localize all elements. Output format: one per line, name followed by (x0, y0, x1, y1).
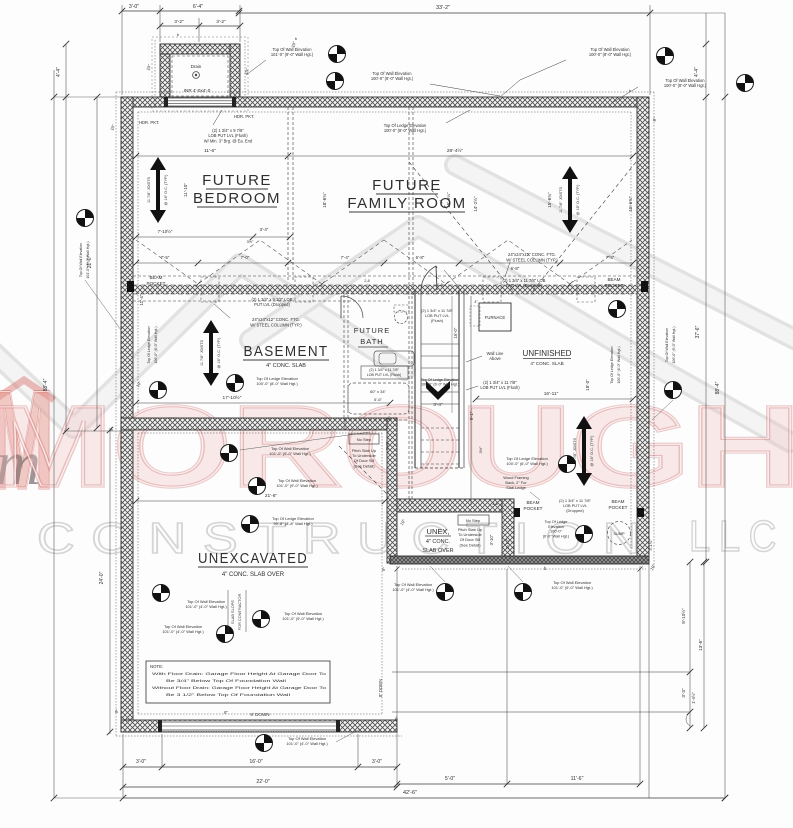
svg-text:Top Of Wall Elevation: Top Of Wall Elevation (665, 328, 669, 362)
svg-text:PUT LVL (Dropped): PUT LVL (Dropped) (506, 283, 542, 288)
svg-text:FUTURE: FUTURE (372, 177, 442, 194)
svg-text:(See Detail): (See Detail) (459, 542, 481, 547)
svg-text:5'-0": 5'-0" (445, 776, 455, 782)
svg-text:BASEMENT: BASEMENT (244, 343, 329, 360)
svg-text:88'-4": 88'-4" (43, 378, 49, 391)
svg-text:3'-2": 3'-2" (216, 19, 226, 25)
svg-text:Top Of Ledge Elevation: Top Of Ledge Elevation (421, 378, 459, 382)
svg-text:Top Of Ledge: Top Of Ledge (545, 520, 568, 524)
svg-text:Slab Ledge: Slab Ledge (506, 485, 526, 490)
svg-text:60" x 34": 60" x 34" (370, 389, 387, 394)
svg-text:(Dropped): (Dropped) (566, 508, 584, 513)
svg-text:3½": 3½" (478, 446, 483, 454)
svg-text:101'-0" (9'-0" Wall Hgt.): 101'-0" (9'-0" Wall Hgt.) (271, 52, 314, 57)
svg-text:100'-0" (6'-0" Wall Hgt.): 100'-0" (6'-0" Wall Hgt.) (421, 383, 459, 387)
svg-text:1'-4½": 1'-4½" (691, 692, 696, 704)
svg-text:3'-0": 3'-0" (136, 759, 146, 765)
svg-text:16'-0": 16'-0" (453, 327, 458, 338)
svg-text:Be 3/4" Below Top Of Foundatio: Be 3/4" Below Top Of Foundation Wall (166, 678, 286, 683)
svg-text:FURNACE: FURNACE (485, 315, 505, 320)
svg-text:100'-0" (8'-0" Wall Hgt.): 100'-0" (8'-0" Wall Hgt.) (371, 76, 414, 81)
svg-text:7'-5": 7'-5" (161, 255, 170, 260)
svg-text:UNFINISHED: UNFINISHED (523, 349, 572, 358)
svg-text:HDR. PKT.: HDR. PKT. (234, 114, 254, 119)
svg-text:3'-0": 3'-0" (129, 4, 139, 10)
svg-text:W/ STEEL COLUMN (TYP.): W/ STEEL COLUMN (TYP.) (506, 257, 558, 262)
svg-text:3'-3": 3'-3" (681, 688, 686, 698)
svg-text:11'-6": 11'-6" (204, 148, 216, 154)
svg-text:2-8: 2-8 (364, 279, 369, 283)
svg-text:BEAM: BEAM (526, 500, 539, 505)
svg-text:18'-0": 18'-0" (585, 379, 590, 391)
svg-text:18'-6¾": 18'-6¾" (322, 192, 327, 208)
svg-text:4" CONC. SLAB: 4" CONC. SLAB (266, 363, 306, 369)
svg-text:100'-0" (8'-0" Wall Hgt.): 100'-0" (8'-0" Wall Hgt.) (154, 326, 158, 363)
svg-text:(Flush): (Flush) (431, 318, 444, 323)
svg-text:3½": 3½" (247, 240, 254, 244)
svg-text:3'-0": 3'-0" (372, 759, 382, 765)
svg-text:2-6: 2-6 (492, 502, 497, 506)
svg-text:No Step: No Step (357, 437, 372, 442)
svg-text:4'-4": 4'-4" (694, 67, 700, 77)
svg-text:3'-10": 3'-10" (489, 534, 494, 545)
svg-text:BATH: BATH (360, 337, 383, 346)
svg-text:101'-0" (9'-0" Wall Hgt.): 101'-0" (9'-0" Wall Hgt.) (269, 451, 311, 456)
svg-text:16'-0": 16'-0" (249, 759, 262, 765)
svg-text:FOR CONTRACTOR: FOR CONTRACTOR (237, 593, 242, 630)
svg-text:100'-0" (8'-0" Wall Hgt.): 100'-0" (8'-0" Wall Hgt.) (664, 83, 707, 88)
svg-text:@ 16" O.C. (TYP.): @ 16" O.C. (TYP.) (576, 184, 580, 216)
svg-text:28'-4½": 28'-4½" (447, 147, 464, 154)
svg-text:INR 4'-0x4'-0: INR 4'-0x4'-0 (184, 88, 211, 93)
svg-text:4" CONC.: 4" CONC. (426, 539, 451, 545)
svg-text:100'-0" (8'-0" Wall Hgt.): 100'-0" (8'-0" Wall Hgt.) (384, 128, 427, 133)
svg-text:17'-10½": 17'-10½" (223, 394, 242, 401)
svg-text:@ 16" O.C. (TYP.): @ 16" O.C. (TYP.) (164, 174, 168, 206)
svg-text:101'-0" (4'-0" Wall Hgt.): 101'-0" (4'-0" Wall Hgt.) (162, 629, 204, 634)
svg-text:11'-6": 11'-6" (571, 776, 584, 782)
svg-text:Without Floor Drain: Garage Fl: Without Floor Drain: Garage Floor Height… (152, 685, 327, 690)
svg-text:SLAB OVER: SLAB OVER (422, 548, 453, 554)
svg-text:88'-4": 88'-4" (715, 381, 721, 394)
svg-text:Drain: Drain (191, 64, 202, 69)
svg-text:7'-10½": 7'-10½" (158, 229, 173, 234)
svg-text:SLAB SLOPE: SLAB SLOPE (230, 600, 235, 624)
svg-text:8' DOWN: 8' DOWN (250, 712, 269, 717)
svg-text:4" CONC. SLAB OVER: 4" CONC. SLAB OVER (222, 572, 285, 578)
svg-text:4'-4": 4'-4" (56, 67, 62, 77)
svg-text:BEAM: BEAM (149, 275, 162, 280)
svg-text:W/ STEEL COLUMN (TYP.): W/ STEEL COLUMN (TYP.) (250, 322, 302, 327)
svg-text:LOB PUT LVL (Flush): LOB PUT LVL (Flush) (367, 373, 401, 377)
svg-text:NOTE:: NOTE: (150, 664, 163, 669)
svg-text:3'-1¼": 3'-1¼" (648, 539, 653, 551)
svg-text:100'-0" (8'-0" Wall Hgt.): 100'-0" (8'-0" Wall Hgt.) (589, 52, 632, 57)
svg-text:LLC: LLC (689, 512, 785, 561)
svg-text:8'-10½": 8'-10½" (680, 608, 686, 624)
svg-text:24'-0": 24'-0" (99, 571, 105, 584)
svg-text:101'-0" (4'-0" Wall Hgt.): 101'-0" (4'-0" Wall Hgt.) (185, 604, 227, 609)
svg-text:3'-10": 3'-10" (505, 538, 510, 549)
svg-text:6'-8": 6'-8" (511, 266, 520, 271)
svg-text:6'-8": 6'-8" (416, 255, 425, 260)
svg-text:42'-6": 42'-6" (403, 790, 417, 796)
svg-text:FUTURE: FUTURE (354, 326, 390, 335)
svg-text:11'-4": 11'-4" (139, 294, 144, 305)
svg-text:No Step: No Step (466, 518, 481, 523)
svg-text:37'-6": 37'-6" (695, 325, 701, 338)
svg-text:101'-0" (9'-0" Wall Hgt.): 101'-0" (9'-0" Wall Hgt.) (282, 616, 324, 621)
svg-text:21'-6": 21'-6" (265, 493, 278, 499)
svg-text:6'-6": 6'-6" (385, 441, 390, 450)
svg-text:(2) 1 3/4" x 11 7/8": (2) 1 3/4" x 11 7/8" (369, 368, 399, 372)
svg-text:14'-2½": 14'-2½" (472, 196, 478, 212)
svg-text:11 7/8" JOISTS: 11 7/8" JOISTS (147, 177, 151, 203)
svg-text:8" DOWN: 8" DOWN (378, 679, 383, 697)
svg-text:33'-2": 33'-2" (436, 5, 450, 11)
svg-text:3'-4": 3'-4" (433, 402, 443, 407)
svg-text:BEAM: BEAM (611, 499, 624, 504)
svg-text:(6'-0" Wall Hgt.): (6'-0" Wall Hgt.) (543, 535, 570, 539)
svg-text:POCKET: POCKET (524, 506, 543, 511)
svg-text:7'-5": 7'-5" (606, 255, 615, 260)
svg-text:101'-0" (4'-0" Wall Hgt.): 101'-0" (4'-0" Wall Hgt.) (286, 741, 328, 746)
svg-text:99'-8" (8'-8" Wall Hgt.): 99'-8" (8'-8" Wall Hgt.) (273, 521, 313, 526)
svg-text:7'-4": 7'-4" (341, 255, 350, 260)
svg-text:15'-6¾": 15'-6¾" (547, 192, 552, 208)
svg-text:SUMP: SUMP (613, 531, 625, 536)
svg-text:Be 3 1/2" Below Top Of Foundat: Be 3 1/2" Below Top Of Foundation Wall (166, 692, 290, 697)
svg-text:UNEX,: UNEX, (427, 527, 450, 536)
svg-text:101'-0" (9'-0" Wall Hgt.): 101'-0" (9'-0" Wall Hgt.) (86, 241, 90, 278)
svg-text:@ 16" O.C. (TYP.): @ 16" O.C. (TYP.) (590, 435, 594, 467)
svg-text:POCKET: POCKET (609, 505, 628, 510)
svg-text:PUT LVL (Dropped): PUT LVL (Dropped) (254, 302, 290, 307)
svg-text:UNEXCAVATED: UNEXCAVATED (198, 550, 308, 567)
svg-text:Above: Above (489, 356, 501, 361)
svg-text:POCKET: POCKET (605, 283, 624, 288)
svg-text:15'-6¼": 15'-6¼" (446, 192, 451, 208)
svg-text:24"x24"x12" CONC. FTG.: 24"x24"x12" CONC. FTG. (252, 317, 300, 322)
svg-text:Elevation: Elevation (548, 525, 564, 529)
svg-text:Top Of Wall Elevation: Top Of Wall Elevation (79, 243, 83, 277)
svg-text:101'-0" (9'-0" Wall Hgt.): 101'-0" (9'-0" Wall Hgt.) (276, 483, 318, 488)
svg-text:6": 6" (224, 710, 228, 715)
svg-text:11 7/8" JOISTS: 11 7/8" JOISTS (200, 340, 204, 366)
svg-text:100'-0": 100'-0" (550, 530, 562, 534)
svg-text:16'-11": 16'-11" (544, 391, 559, 397)
svg-text:(See Detail): (See Detail) (353, 463, 375, 468)
svg-text:Top Of Ledge Elevation: Top Of Ledge Elevation (147, 326, 151, 363)
svg-text:6'-4": 6'-4" (193, 4, 203, 10)
svg-text:4" CONC. SLAB: 4" CONC. SLAB (530, 361, 563, 366)
svg-text:22'-0": 22'-0" (256, 779, 269, 785)
svg-text:7'-0": 7'-0" (241, 255, 250, 260)
svg-text:13'-6": 13'-6" (698, 639, 703, 651)
svg-text:100'-0" (6'-0" Wall Hgt.): 100'-0" (6'-0" Wall Hgt.) (506, 461, 548, 466)
svg-text:24"x24"x12" CONC. FTG.: 24"x24"x12" CONC. FTG. (508, 252, 556, 257)
svg-text:3'-2": 3'-2" (174, 19, 184, 25)
svg-text:With Floor Drain: Garage Floor: With Floor Drain: Garage Floor Height At… (152, 671, 327, 676)
svg-text:FUTURE: FUTURE (202, 172, 272, 189)
svg-text:9'-1": 9'-1" (469, 411, 474, 420)
svg-text:@ 16" O.C. (TYP.): @ 16" O.C. (TYP.) (217, 337, 221, 369)
svg-text:11 7/8" JOISTS: 11 7/8" JOISTS (559, 187, 563, 213)
svg-text:100'-0" (8'-0" Wall Hgt.): 100'-0" (8'-0" Wall Hgt.) (256, 381, 298, 386)
svg-text:LOB PUT LVL (Flush): LOB PUT LVL (Flush) (208, 133, 248, 138)
svg-text:101'-0" (4'-0" Wall Hgt.): 101'-0" (4'-0" Wall Hgt.) (392, 587, 434, 592)
svg-text:2-8: 2-8 (437, 283, 442, 287)
svg-text:BEDROOM: BEDROOM (193, 190, 281, 207)
svg-text:101'-0" (9'-0" Wall Hgt.): 101'-0" (9'-0" Wall Hgt.) (551, 585, 593, 590)
svg-text:100'-0" (6'-0" Wall Hgt.): 100'-0" (6'-0" Wall Hgt.) (617, 346, 621, 383)
svg-text:15'-6⅜": 15'-6⅜" (628, 196, 633, 211)
svg-text:3'-4": 3'-4" (260, 227, 269, 232)
svg-text:W/ Min. 3" Brg. @ Ea. End: W/ Min. 3" Brg. @ Ea. End (204, 138, 253, 143)
svg-text:POCKET: POCKET (147, 281, 166, 286)
svg-text:HDR. PKT.: HDR. PKT. (139, 120, 159, 125)
svg-text:BEAM: BEAM (607, 277, 620, 282)
svg-text:100'-0" (9'-0" Wall Hgt.): 100'-0" (9'-0" Wall Hgt.) (672, 326, 676, 363)
svg-text:11'-10": 11'-10" (183, 183, 188, 197)
svg-text:5'-6": 5'-6" (374, 397, 383, 402)
svg-text:LOB PUT LVL (Flush): LOB PUT LVL (Flush) (480, 385, 520, 390)
svg-text:Top Of Ledge Elevation: Top Of Ledge Elevation (610, 346, 614, 383)
